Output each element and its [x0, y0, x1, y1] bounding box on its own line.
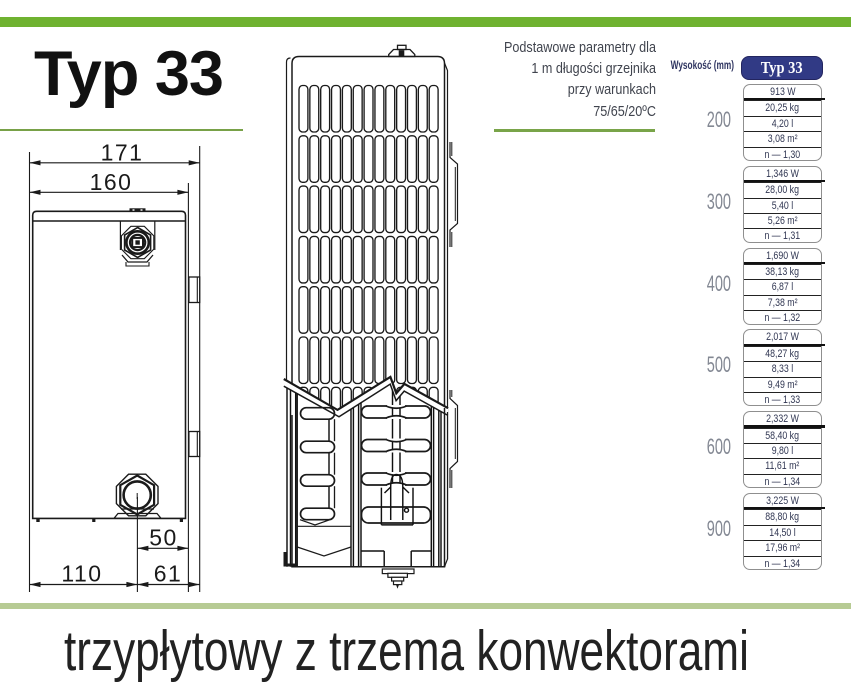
svg-text:50: 50 — [149, 525, 178, 551]
svg-text:110: 110 — [61, 561, 102, 587]
svg-text:160: 160 — [90, 169, 133, 195]
svg-text:171: 171 — [101, 140, 144, 166]
svg-text:61: 61 — [154, 561, 183, 587]
